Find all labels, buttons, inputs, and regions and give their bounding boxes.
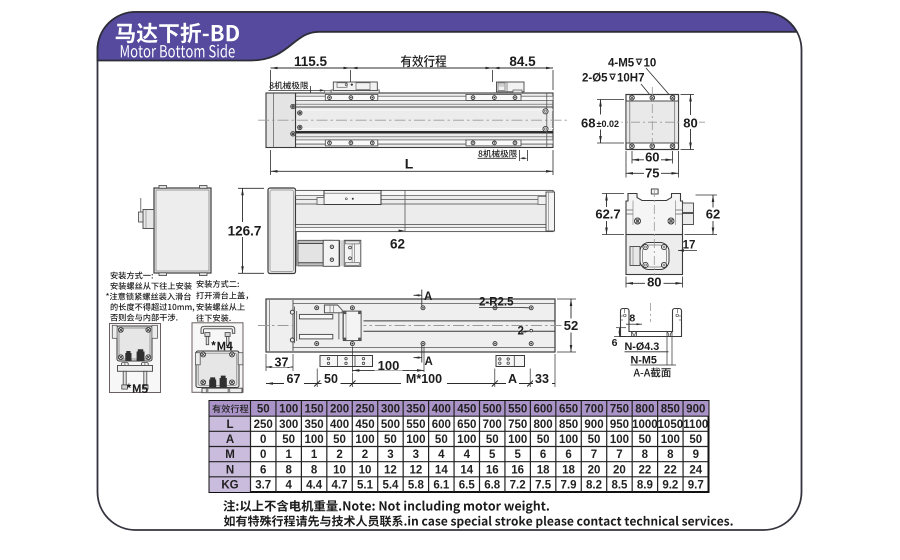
svg-text:6: 6 bbox=[260, 464, 266, 476]
svg-text:50: 50 bbox=[324, 372, 338, 386]
svg-text:±0.02: ±0.02 bbox=[597, 119, 619, 129]
svg-text:8: 8 bbox=[642, 449, 649, 461]
svg-text:60: 60 bbox=[645, 150, 659, 165]
svg-text:M: M bbox=[225, 449, 235, 461]
svg-text:24: 24 bbox=[689, 464, 702, 476]
svg-text:50: 50 bbox=[588, 434, 601, 446]
svg-text:800: 800 bbox=[534, 419, 553, 431]
svg-text:150: 150 bbox=[305, 403, 324, 415]
svg-text:75: 75 bbox=[645, 165, 659, 180]
svg-text:3: 3 bbox=[413, 449, 419, 461]
svg-text:33: 33 bbox=[535, 372, 549, 386]
svg-text:10: 10 bbox=[644, 58, 657, 70]
svg-text:6: 6 bbox=[565, 449, 571, 461]
svg-text:5.4: 5.4 bbox=[382, 479, 399, 491]
svg-text:450: 450 bbox=[355, 419, 374, 431]
svg-text:N-Ø4.3: N-Ø4.3 bbox=[625, 341, 660, 353]
svg-text:62.7: 62.7 bbox=[595, 207, 620, 222]
svg-text:9.2: 9.2 bbox=[662, 479, 678, 491]
svg-text:850: 850 bbox=[661, 403, 680, 415]
svg-text:80: 80 bbox=[647, 274, 661, 289]
svg-text:22: 22 bbox=[664, 464, 677, 476]
svg-text:6: 6 bbox=[612, 337, 618, 349]
svg-text:N: N bbox=[226, 464, 234, 476]
svg-text:3.7: 3.7 bbox=[255, 479, 271, 491]
svg-text:900: 900 bbox=[584, 419, 603, 431]
svg-text:50: 50 bbox=[486, 434, 499, 446]
svg-text:126.7: 126.7 bbox=[228, 224, 262, 239]
svg-text:250: 250 bbox=[254, 419, 273, 431]
svg-text:6.8: 6.8 bbox=[484, 479, 501, 491]
svg-text:7.2: 7.2 bbox=[510, 479, 526, 491]
svg-text:17: 17 bbox=[683, 240, 696, 252]
svg-text:50: 50 bbox=[257, 403, 270, 415]
svg-text:8: 8 bbox=[667, 449, 674, 461]
svg-text:50: 50 bbox=[384, 434, 397, 446]
svg-text:9.7: 9.7 bbox=[688, 479, 704, 491]
svg-text:4: 4 bbox=[438, 449, 445, 461]
svg-text:550: 550 bbox=[406, 419, 425, 431]
svg-text:1000: 1000 bbox=[632, 419, 658, 431]
svg-text:16: 16 bbox=[511, 464, 524, 476]
svg-text:22: 22 bbox=[638, 464, 651, 476]
svg-text:8: 8 bbox=[629, 313, 635, 325]
svg-text:10: 10 bbox=[359, 464, 372, 476]
svg-text:650: 650 bbox=[559, 403, 578, 415]
svg-text:10H7: 10H7 bbox=[617, 73, 645, 85]
svg-text:100: 100 bbox=[305, 434, 324, 446]
svg-text:A: A bbox=[424, 291, 432, 303]
svg-text:500: 500 bbox=[483, 403, 502, 415]
svg-text:700: 700 bbox=[584, 403, 603, 415]
svg-text:0: 0 bbox=[260, 449, 266, 461]
svg-text:800: 800 bbox=[635, 403, 654, 415]
svg-text:37: 37 bbox=[275, 356, 289, 370]
svg-text:18: 18 bbox=[562, 464, 575, 476]
svg-text:62: 62 bbox=[390, 237, 405, 252]
svg-text:350: 350 bbox=[406, 403, 425, 415]
svg-text:N-M5: N-M5 bbox=[631, 354, 657, 366]
svg-text:8: 8 bbox=[311, 464, 318, 476]
svg-text:300: 300 bbox=[381, 403, 400, 415]
svg-text:80: 80 bbox=[683, 116, 697, 131]
svg-text:KG: KG bbox=[221, 479, 238, 491]
svg-text:2: 2 bbox=[336, 449, 342, 461]
svg-text:3: 3 bbox=[387, 449, 393, 461]
svg-text:L: L bbox=[226, 419, 233, 431]
svg-text:5: 5 bbox=[514, 449, 521, 461]
svg-text:200: 200 bbox=[330, 403, 349, 415]
svg-text:850: 850 bbox=[559, 419, 578, 431]
svg-text:7.9: 7.9 bbox=[561, 479, 577, 491]
svg-text:600: 600 bbox=[432, 419, 451, 431]
svg-text:20: 20 bbox=[613, 464, 626, 476]
svg-text:5.1: 5.1 bbox=[357, 479, 374, 491]
svg-text:100: 100 bbox=[661, 434, 680, 446]
svg-text:950: 950 bbox=[610, 419, 629, 431]
svg-text:2-R2.5: 2-R2.5 bbox=[479, 297, 514, 309]
svg-text:100: 100 bbox=[279, 403, 298, 415]
svg-text:2-Ø5: 2-Ø5 bbox=[582, 73, 608, 85]
svg-text:6.5: 6.5 bbox=[459, 479, 476, 491]
svg-text:50: 50 bbox=[638, 434, 651, 446]
svg-text:6: 6 bbox=[540, 449, 546, 461]
svg-text:0: 0 bbox=[260, 434, 266, 446]
svg-text:68: 68 bbox=[581, 116, 595, 131]
svg-text:10: 10 bbox=[333, 464, 346, 476]
svg-text:5: 5 bbox=[489, 449, 496, 461]
svg-text:7: 7 bbox=[591, 449, 597, 461]
svg-text:50: 50 bbox=[537, 434, 550, 446]
svg-text:4.7: 4.7 bbox=[332, 479, 348, 491]
svg-text:16: 16 bbox=[486, 464, 499, 476]
svg-text:650: 650 bbox=[457, 419, 476, 431]
svg-text:4: 4 bbox=[464, 449, 471, 461]
svg-text:500: 500 bbox=[381, 419, 400, 431]
svg-text:18: 18 bbox=[537, 464, 550, 476]
svg-text:A: A bbox=[508, 372, 517, 386]
svg-text:1100: 1100 bbox=[683, 419, 708, 431]
svg-text:7.5: 7.5 bbox=[535, 479, 552, 491]
svg-text:20: 20 bbox=[588, 464, 601, 476]
svg-text:350: 350 bbox=[305, 419, 324, 431]
svg-text:7: 7 bbox=[616, 449, 622, 461]
svg-text:2: 2 bbox=[362, 449, 368, 461]
svg-text:1: 1 bbox=[285, 449, 292, 461]
svg-text:12: 12 bbox=[384, 464, 397, 476]
svg-text:4.4: 4.4 bbox=[306, 479, 323, 491]
svg-text:84.5: 84.5 bbox=[509, 54, 536, 69]
svg-text:M*100: M*100 bbox=[406, 372, 442, 386]
svg-text:62: 62 bbox=[706, 207, 720, 222]
svg-text:L: L bbox=[405, 156, 414, 172]
svg-text:750: 750 bbox=[508, 419, 527, 431]
svg-text:100: 100 bbox=[378, 358, 400, 373]
svg-text:300: 300 bbox=[279, 419, 298, 431]
svg-text:1: 1 bbox=[311, 449, 318, 461]
svg-text:450: 450 bbox=[457, 403, 476, 415]
svg-text:400: 400 bbox=[330, 419, 349, 431]
svg-text:67: 67 bbox=[287, 372, 301, 386]
svg-text:9: 9 bbox=[693, 449, 699, 461]
svg-text:50: 50 bbox=[333, 434, 346, 446]
svg-text:8: 8 bbox=[285, 464, 292, 476]
svg-text:1050: 1050 bbox=[658, 419, 684, 431]
svg-text:100: 100 bbox=[610, 434, 629, 446]
svg-text:4: 4 bbox=[285, 479, 292, 491]
svg-text:6.1: 6.1 bbox=[433, 479, 450, 491]
svg-text:5.8: 5.8 bbox=[408, 479, 425, 491]
svg-text:250: 250 bbox=[355, 403, 374, 415]
svg-text:100: 100 bbox=[355, 434, 374, 446]
svg-text:550: 550 bbox=[508, 403, 527, 415]
svg-text:100: 100 bbox=[559, 434, 578, 446]
svg-text:700: 700 bbox=[483, 419, 502, 431]
svg-text:A: A bbox=[226, 434, 234, 446]
svg-text:750: 750 bbox=[610, 403, 629, 415]
svg-text:115.5: 115.5 bbox=[294, 54, 328, 69]
svg-text:100: 100 bbox=[457, 434, 476, 446]
svg-text:100: 100 bbox=[406, 434, 425, 446]
svg-text:50: 50 bbox=[689, 434, 702, 446]
svg-text:14: 14 bbox=[460, 464, 473, 476]
svg-text:50: 50 bbox=[435, 434, 448, 446]
svg-text:600: 600 bbox=[534, 403, 553, 415]
svg-text:4-M5: 4-M5 bbox=[608, 58, 635, 70]
svg-text:8.9: 8.9 bbox=[637, 479, 653, 491]
svg-text:400: 400 bbox=[432, 403, 451, 415]
svg-text:900: 900 bbox=[686, 403, 705, 415]
svg-text:100: 100 bbox=[508, 434, 527, 446]
svg-text:14: 14 bbox=[435, 464, 448, 476]
svg-text:8.5: 8.5 bbox=[611, 479, 628, 491]
svg-text:2: 2 bbox=[518, 326, 524, 338]
svg-text:12: 12 bbox=[409, 464, 422, 476]
svg-text:52: 52 bbox=[564, 318, 578, 333]
svg-text:A: A bbox=[425, 356, 433, 368]
svg-text:8.2: 8.2 bbox=[586, 479, 602, 491]
svg-text:50: 50 bbox=[282, 434, 295, 446]
